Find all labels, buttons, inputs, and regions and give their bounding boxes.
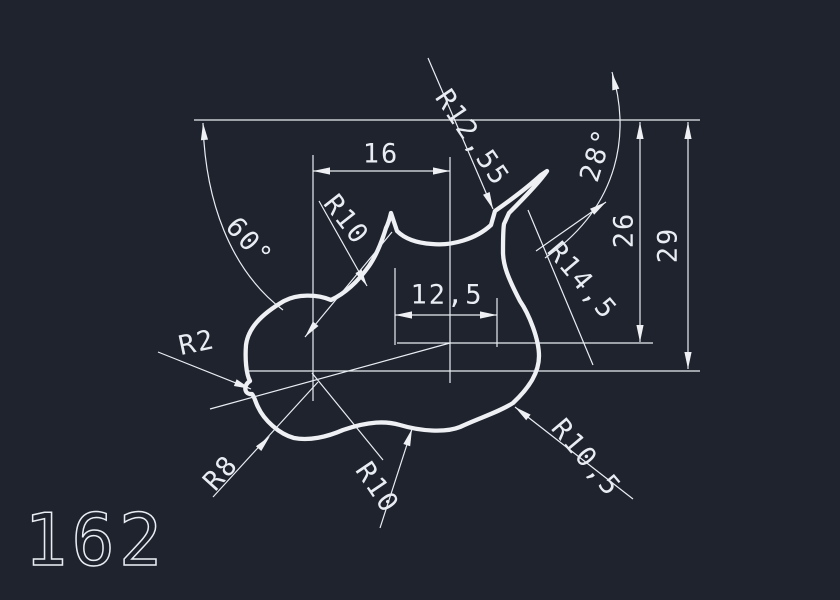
arrow-r10-bottom [403,428,415,446]
arrow-angle-28 [608,72,619,90]
dim-text-width-16: 16 [363,141,400,168]
arrow-16-left [313,167,330,174]
arrow-16-right [433,167,450,174]
arrow-r8 [256,434,273,451]
arrow-29-bottom [684,352,691,369]
dim-text-height-26: 26 [611,212,638,249]
profile-outline [245,171,547,439]
arrowheads [199,72,691,451]
arrow-26-bottom [636,325,643,342]
profile-path [245,171,547,439]
dim-text-r2: R2 [176,326,217,360]
construction-radial-lower [312,373,383,460]
arrow-angle-60 [199,123,208,141]
arrow-12-5-left [395,311,412,318]
dim-text-height-29: 29 [655,227,682,264]
arrow-r10-5 [513,404,531,420]
cad-drawing-canvas[interactable]: 16 12,5 26 29 60° 28° R10 R12,55 R14,5 R… [0,0,840,600]
part-number-text: 162 [24,504,166,576]
dim-text-width-12-5: 12,5 [410,282,483,309]
arrow-26-top [636,122,643,139]
arrow-29-top [684,122,691,139]
arrow-r12-55 [483,192,496,210]
arrow-12-5-right [480,311,497,318]
